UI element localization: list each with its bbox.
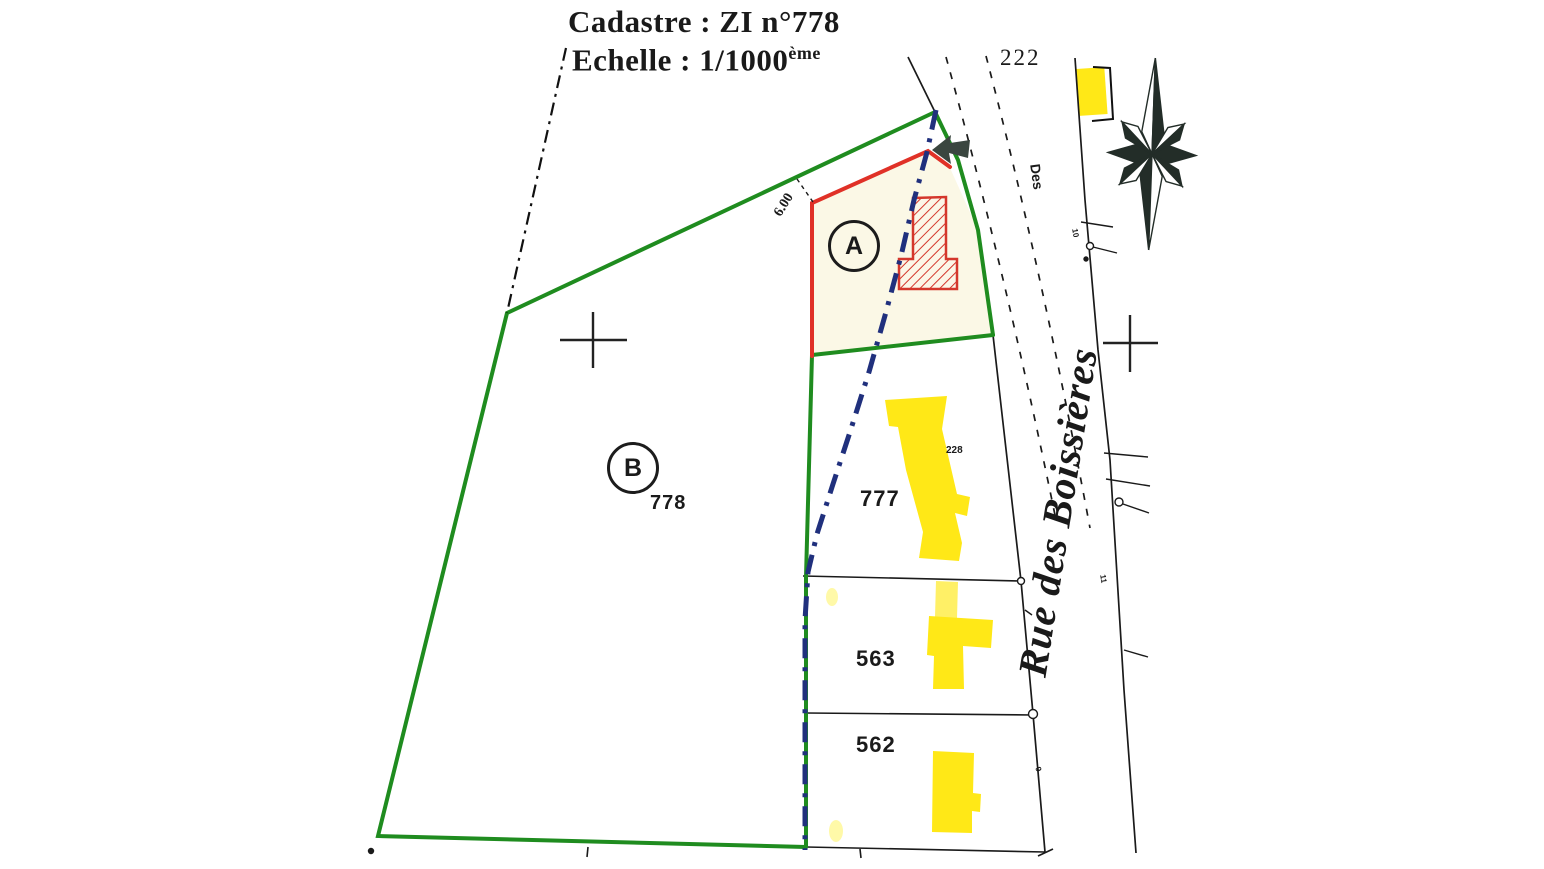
scale-text: Echelle : 1/1000 bbox=[572, 42, 788, 77]
parcel-778-label: 778 bbox=[650, 493, 686, 513]
cadastre-title: Cadastre : ZI n°778 bbox=[568, 6, 840, 37]
dimension-tie-line bbox=[797, 179, 813, 202]
scale-exponent: ème bbox=[788, 43, 820, 63]
zone-b-marker: B bbox=[607, 442, 659, 494]
house-number-11: 11 bbox=[1098, 574, 1107, 584]
parcel-562-label: 562 bbox=[856, 734, 896, 756]
small-yellow-mark bbox=[829, 820, 843, 842]
building-562 bbox=[932, 751, 981, 833]
zone-a-letter: A bbox=[845, 232, 863, 261]
parcel-dividers bbox=[587, 576, 1045, 858]
house-number-10: 10 bbox=[1070, 228, 1079, 238]
small-yellow-mark bbox=[826, 588, 838, 606]
parcel-563-label: 563 bbox=[856, 648, 896, 670]
compass-rose-icon bbox=[1105, 57, 1200, 252]
zone-b-letter: B bbox=[624, 454, 642, 483]
parcel-777-label: 777 bbox=[860, 488, 900, 510]
building-222 bbox=[1076, 67, 1113, 121]
building-228-label: 228 bbox=[946, 446, 963, 456]
cadastral-map-drawing bbox=[0, 0, 1544, 869]
parcel-222-label: 222 bbox=[1000, 46, 1041, 69]
building-563 bbox=[927, 581, 993, 689]
title-leader-line bbox=[507, 48, 566, 313]
zone-a-marker: A bbox=[828, 220, 880, 272]
building-777 bbox=[885, 396, 970, 561]
scale-label: Echelle : 1/1000ème bbox=[572, 44, 821, 75]
street-partial-label: Des bbox=[1028, 163, 1045, 190]
cadastral-plan: Cadastre : ZI n°778 Echelle : 1/1000ème … bbox=[0, 0, 1544, 869]
